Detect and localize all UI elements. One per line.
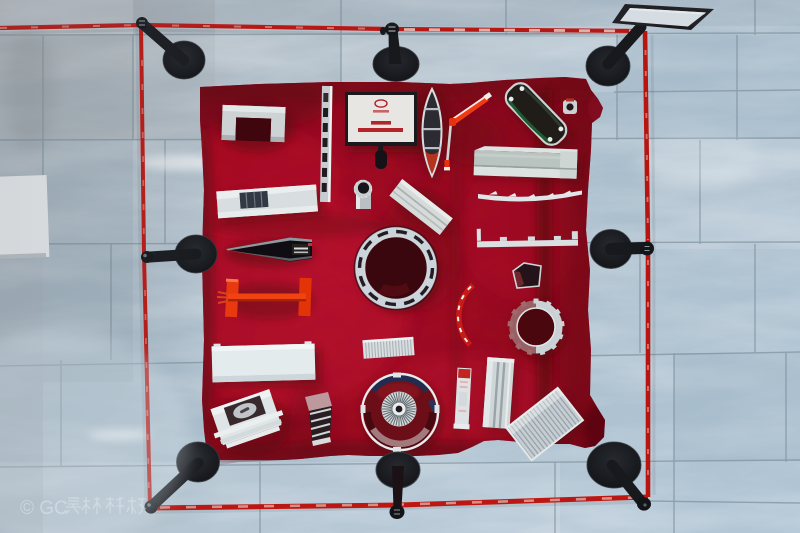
svg-text:© GC: © GC xyxy=(20,498,68,519)
